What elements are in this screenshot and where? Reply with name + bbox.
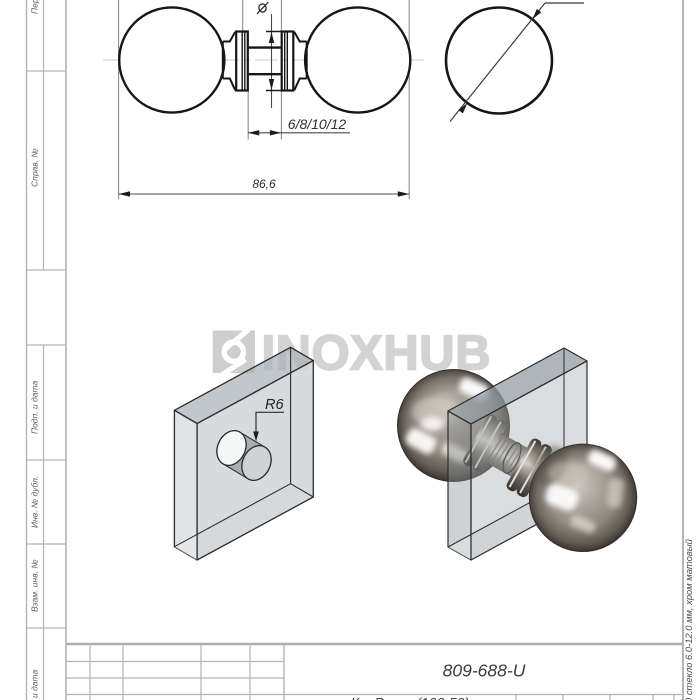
svg-text:R6: R6 xyxy=(265,397,284,413)
svg-text:6/8/10/12: 6/8/10/12 xyxy=(288,116,347,132)
svg-text:Кн. Ручка (100-50): Кн. Ручка (100-50) xyxy=(351,695,470,700)
svg-text:86,6: 86,6 xyxy=(252,177,276,191)
svg-text:Справ. №: Справ. № xyxy=(30,148,40,187)
svg-text:809-688-U: 809-688-U xyxy=(443,661,526,681)
svg-text:Подп. и дата: Подп. и дата xyxy=(30,670,40,700)
svg-text:0 стекло 6.0-12.0 мм, хром мат: 0 стекло 6.0-12.0 мм, хром матовый xyxy=(683,538,694,700)
svg-text:Перв. примен.: Перв. примен. xyxy=(30,0,40,14)
svg-text:Подп. и дата: Подп. и дата xyxy=(30,381,40,434)
svg-text:Инв. № дубл.: Инв. № дубл. xyxy=(30,476,40,528)
svg-text:Взам. инв. №: Взам. инв. № xyxy=(30,559,40,612)
